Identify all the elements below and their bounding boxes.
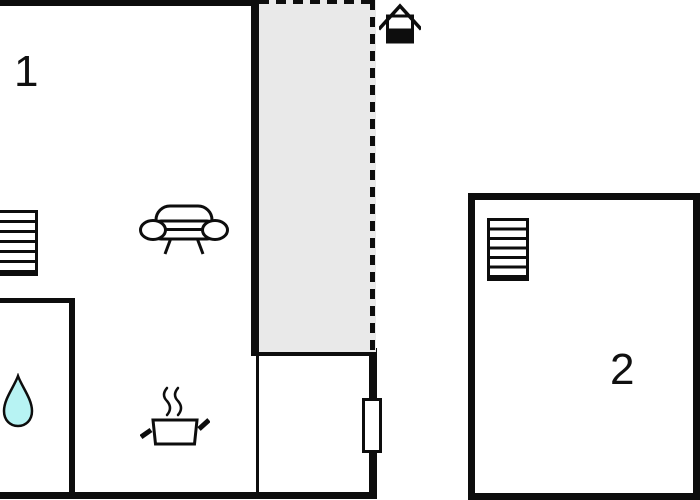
terrace-area (259, 0, 376, 352)
room-label-1: 1 (14, 50, 38, 94)
stairs-icon (487, 218, 529, 281)
bathroom-top-wall (0, 298, 75, 303)
unit1-bottom-wall (0, 492, 377, 499)
house-entrance-icon (379, 1, 421, 47)
kitchen-partition-wall (256, 356, 259, 492)
room-label-2: 2 (610, 348, 634, 392)
window-marker (362, 398, 382, 453)
terrace-dashed-top-edge (259, 0, 378, 4)
cooking-pot-icon (140, 384, 210, 448)
water-drop-icon (1, 373, 35, 429)
steam-icon (175, 388, 181, 415)
unit1-right-wall (251, 0, 259, 356)
stairs-icon (0, 210, 38, 276)
unit1-top-wall (0, 0, 259, 6)
floor-plan: 1 2 (0, 0, 700, 500)
steam-icon (164, 388, 170, 415)
terrace-dashed-right-edge (370, 0, 375, 352)
sofa-icon (139, 202, 229, 256)
bathroom-right-wall (69, 298, 75, 497)
